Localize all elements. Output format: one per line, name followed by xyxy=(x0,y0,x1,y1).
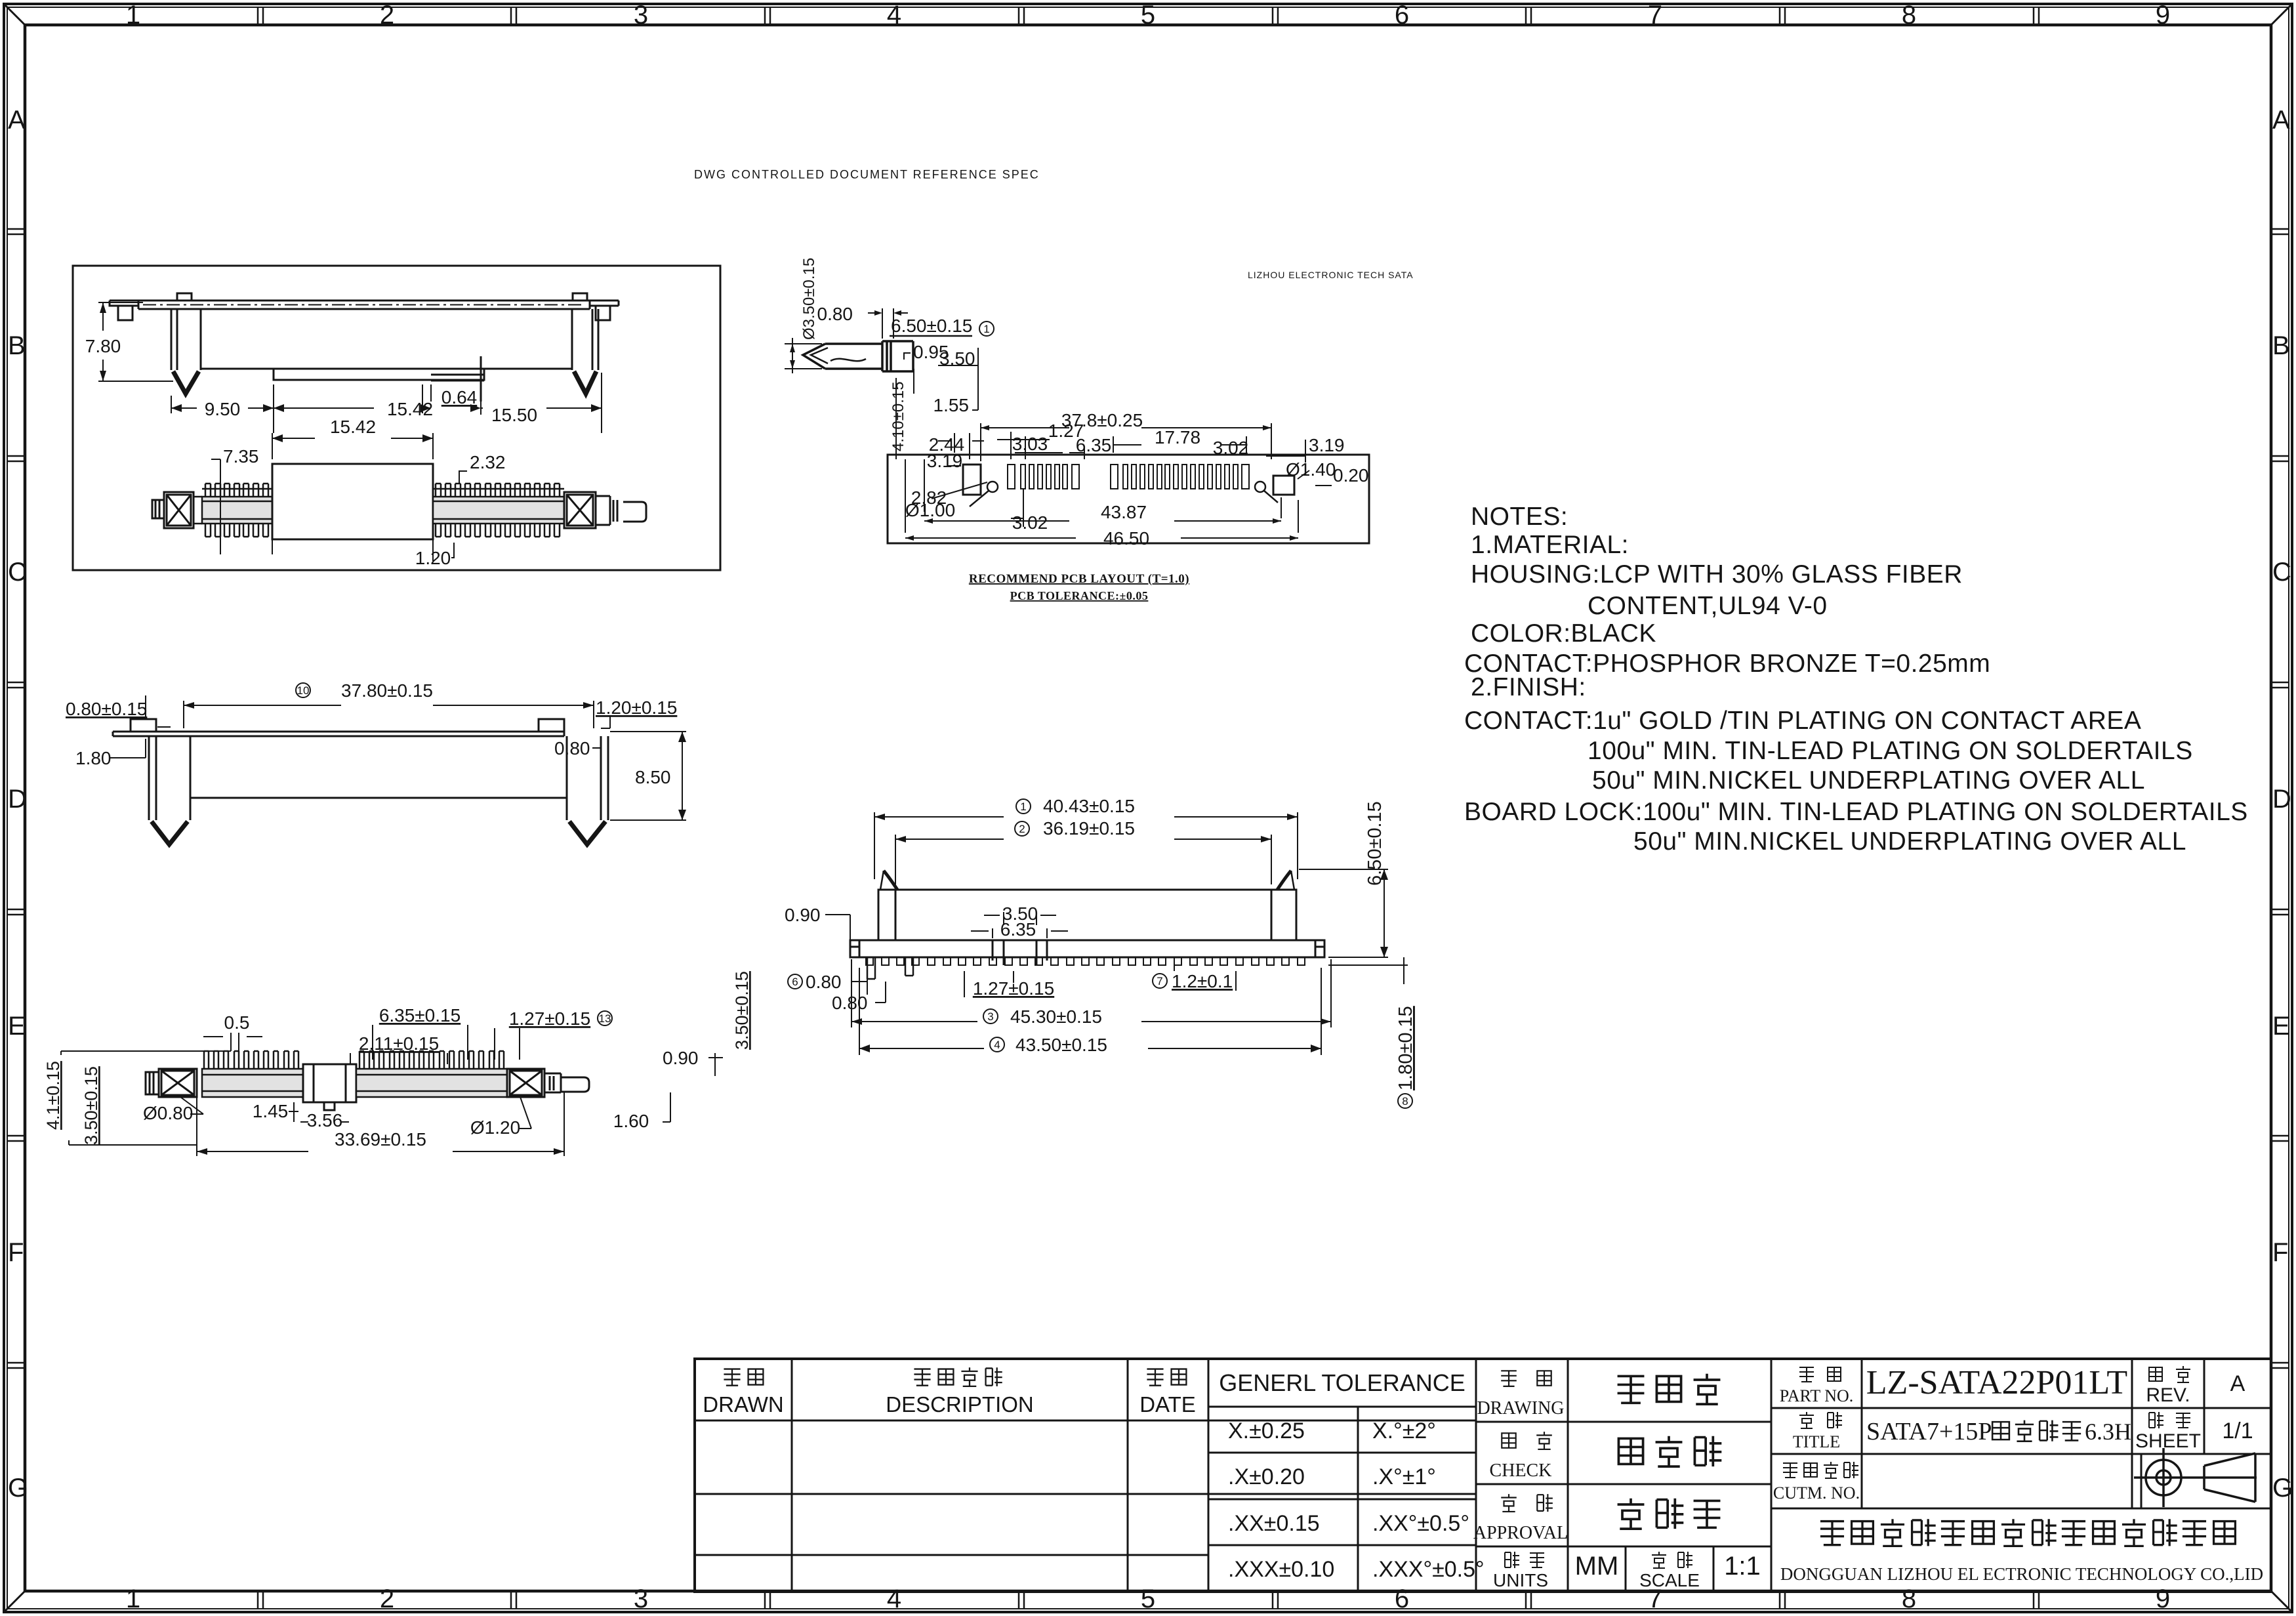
svg-text:43.87: 43.87 xyxy=(1101,502,1147,522)
svg-text:4: 4 xyxy=(887,1,901,30)
svg-text:1.45: 1.45 xyxy=(253,1101,289,1121)
svg-text:3.03: 3.03 xyxy=(1012,434,1048,454)
svg-text:CONTACT:1u" GOLD /TIN PLATI: CONTACT:1u" GOLD /TIN PLATING ON CONTACT… xyxy=(1464,707,2141,735)
svg-text:B: B xyxy=(8,331,26,360)
svg-text:3.02: 3.02 xyxy=(1012,512,1048,533)
svg-text:PART NO.: PART NO. xyxy=(1780,1386,1854,1405)
svg-text:.XX°±0.5°: .XX°±0.5° xyxy=(1372,1511,1469,1536)
svg-text:50u" MIN.NICKEL UNDERPLATING: 50u" MIN.NICKEL UNDERPLATING OVER ALL xyxy=(1633,827,2186,856)
svg-text:SHEET: SHEET xyxy=(2135,1430,2201,1452)
svg-text:F: F xyxy=(8,1238,24,1267)
svg-text:UNITS: UNITS xyxy=(1493,1570,1548,1590)
svg-text:G: G xyxy=(2272,1474,2293,1502)
svg-text:1.2±0.1: 1.2±0.1 xyxy=(1172,971,1233,991)
svg-text:.XXX±0.10: .XXX±0.10 xyxy=(1228,1557,1334,1582)
svg-text:1.55: 1.55 xyxy=(933,395,970,415)
svg-text:6.3H: 6.3H xyxy=(2085,1419,2131,1445)
svg-text:D: D xyxy=(8,785,27,814)
svg-text:.XX±0.15: .XX±0.15 xyxy=(1228,1511,1320,1536)
svg-text:C: C xyxy=(8,558,27,587)
svg-text:MM: MM xyxy=(1575,1552,1619,1581)
svg-text:9: 9 xyxy=(2156,1585,2170,1613)
svg-text:C: C xyxy=(2272,558,2291,587)
svg-text:7: 7 xyxy=(1157,975,1162,987)
svg-text:NOTES:: NOTES: xyxy=(1471,503,1568,531)
svg-text:1.20±0.15: 1.20±0.15 xyxy=(596,697,677,718)
svg-text:8: 8 xyxy=(1902,1,1916,30)
svg-text:33.69±0.15: 33.69±0.15 xyxy=(335,1129,426,1150)
svg-text:DATE: DATE xyxy=(1139,1392,1196,1417)
svg-text:B: B xyxy=(2272,331,2290,360)
svg-text:2.FINISH:: 2.FINISH: xyxy=(1471,673,1586,701)
svg-text:0.20: 0.20 xyxy=(1333,465,1369,486)
svg-text:APPROVAL: APPROVAL xyxy=(1473,1523,1568,1543)
svg-text:CHECK: CHECK xyxy=(1490,1461,1552,1481)
svg-text:8: 8 xyxy=(1402,1095,1408,1108)
svg-text:0.90: 0.90 xyxy=(663,1048,699,1068)
svg-text:13: 13 xyxy=(599,1012,611,1025)
svg-text:6.35: 6.35 xyxy=(1076,435,1112,455)
svg-text:4: 4 xyxy=(887,1585,901,1613)
svg-text:0.80: 0.80 xyxy=(554,738,590,758)
svg-text:A: A xyxy=(2272,106,2290,135)
svg-text:3.56: 3.56 xyxy=(307,1110,343,1130)
svg-text:A: A xyxy=(2230,1371,2245,1396)
svg-text:DRAWN: DRAWN xyxy=(703,1392,783,1417)
svg-text:10: 10 xyxy=(297,684,310,697)
svg-text:TITLE: TITLE xyxy=(1793,1432,1840,1451)
svg-text:17.78: 17.78 xyxy=(1155,427,1200,447)
svg-text:3.02: 3.02 xyxy=(1213,438,1249,458)
svg-text:X.±0.25: X.±0.25 xyxy=(1228,1419,1305,1443)
svg-text:0.5: 0.5 xyxy=(224,1012,250,1033)
svg-text:PCB TOLERANCE:±0.05: PCB TOLERANCE:±0.05 xyxy=(1010,589,1149,602)
svg-text:Ø1.20: Ø1.20 xyxy=(470,1117,520,1138)
svg-text:E: E xyxy=(2272,1012,2290,1041)
svg-text:3.50±0.15: 3.50±0.15 xyxy=(81,1066,101,1145)
svg-text:6: 6 xyxy=(1395,1585,1409,1613)
svg-text:9: 9 xyxy=(2156,1,2170,30)
svg-text:CONTENT,UL94 V-0: CONTENT,UL94 V-0 xyxy=(1588,592,1828,620)
svg-text:2: 2 xyxy=(1019,823,1025,835)
svg-text:GENERL TOLERANCE: GENERL TOLERANCE xyxy=(1219,1369,1465,1396)
svg-text:0.80: 0.80 xyxy=(806,972,842,992)
svg-text:1.80: 1.80 xyxy=(75,748,112,768)
svg-text:4.10±0.15: 4.10±0.15 xyxy=(890,381,907,451)
svg-text:Ø1.00: Ø1.00 xyxy=(905,500,955,520)
svg-text:BOARD LOCK:100u" MIN. TIN-L: BOARD LOCK:100u" MIN. TIN-LEAD PLATING O… xyxy=(1464,798,2248,826)
svg-text:5: 5 xyxy=(1141,1,1155,30)
svg-text:REV.: REV. xyxy=(2146,1384,2190,1406)
svg-text:100u" MIN. TIN-LEAD PLATING: 100u" MIN. TIN-LEAD PLATING ON SOLDERTAI… xyxy=(1588,737,2193,765)
svg-text:0.90: 0.90 xyxy=(785,905,821,925)
svg-text:LZ-SATA22P01LT: LZ-SATA22P01LT xyxy=(1866,1364,2127,1401)
svg-text:X.°±2°: X.°±2° xyxy=(1372,1419,1436,1443)
svg-text:DONGGUAN LIZHOU EL ECTRONIC TE: DONGGUAN LIZHOU EL ECTRONIC TECHNOLOGY C… xyxy=(1780,1564,2263,1584)
svg-text:3: 3 xyxy=(634,1585,648,1613)
svg-text:3.19: 3.19 xyxy=(927,451,963,471)
svg-text:1: 1 xyxy=(1020,800,1026,813)
svg-text:9.50: 9.50 xyxy=(205,399,241,419)
svg-text:LIZHOU ELECTRONIC TECH SATA: LIZHOU ELECTRONIC TECH SATA xyxy=(1248,270,1414,280)
svg-text:1.27±0.15: 1.27±0.15 xyxy=(509,1008,590,1029)
svg-text:0.80: 0.80 xyxy=(832,993,868,1013)
svg-text:DRAWING: DRAWING xyxy=(1477,1398,1564,1419)
svg-text:2: 2 xyxy=(380,1585,394,1613)
svg-text:RECOMMEND PCB LAYOUT (T=1.0): RECOMMEND PCB LAYOUT (T=1.0) xyxy=(969,572,1189,586)
svg-text:6.35±0.15: 6.35±0.15 xyxy=(379,1005,461,1026)
svg-text:6.35: 6.35 xyxy=(1000,919,1036,940)
svg-text:37.80±0.15: 37.80±0.15 xyxy=(341,680,433,701)
svg-text:Ø0.80: Ø0.80 xyxy=(143,1103,193,1123)
svg-text:7.80: 7.80 xyxy=(85,336,121,356)
svg-text:6: 6 xyxy=(792,976,798,988)
svg-text:1: 1 xyxy=(126,1585,140,1613)
svg-text:E: E xyxy=(8,1012,26,1041)
svg-text:HOUSING:LCP WITH 30% GLASS: HOUSING:LCP WITH 30% GLASS FIBER xyxy=(1471,560,1963,589)
svg-text:5: 5 xyxy=(1141,1585,1155,1613)
svg-text:1.80±0.15: 1.80±0.15 xyxy=(1395,1006,1416,1090)
svg-text:1: 1 xyxy=(126,1,140,30)
svg-text:45.30±0.15: 45.30±0.15 xyxy=(1010,1006,1102,1027)
svg-text:1: 1 xyxy=(983,323,989,335)
svg-text:DESCRIPTION: DESCRIPTION xyxy=(886,1392,1034,1417)
svg-text:0.80±0.15: 0.80±0.15 xyxy=(66,699,147,719)
svg-text:SCALE: SCALE xyxy=(1639,1570,1700,1590)
svg-text:1.60: 1.60 xyxy=(613,1111,649,1131)
svg-text:2.11±0.15: 2.11±0.15 xyxy=(359,1033,439,1054)
svg-text:D: D xyxy=(2272,785,2291,814)
svg-text:43.50±0.15: 43.50±0.15 xyxy=(1015,1035,1107,1055)
svg-text:6.50±0.15: 6.50±0.15 xyxy=(891,316,972,336)
svg-text:0.80: 0.80 xyxy=(817,304,853,324)
svg-text:CUTM. NO.: CUTM. NO. xyxy=(1773,1483,1860,1502)
svg-text:7.35: 7.35 xyxy=(223,446,259,466)
svg-text:3.19: 3.19 xyxy=(1309,435,1345,455)
svg-text:DWG CONTROLLED DOCUMENT REFERE: DWG CONTROLLED DOCUMENT REFERENCE SPEC xyxy=(694,168,1040,181)
svg-text:2.32: 2.32 xyxy=(470,452,506,472)
svg-text:F: F xyxy=(2272,1238,2288,1267)
svg-text:7: 7 xyxy=(1648,1,1662,30)
svg-text:2: 2 xyxy=(380,1,394,30)
svg-text:COLOR:BLACK: COLOR:BLACK xyxy=(1471,619,1656,648)
svg-text:.X±0.20: .X±0.20 xyxy=(1228,1464,1305,1489)
svg-text:36.19±0.15: 36.19±0.15 xyxy=(1043,818,1135,839)
svg-text:6: 6 xyxy=(1395,1,1409,30)
svg-text:0.64: 0.64 xyxy=(441,387,478,407)
svg-text:3: 3 xyxy=(987,1010,993,1023)
svg-text:8.50: 8.50 xyxy=(635,767,671,787)
svg-text:1:1: 1:1 xyxy=(1724,1552,1761,1581)
svg-text:50u" MIN.NICKEL UNDERPLATING: 50u" MIN.NICKEL UNDERPLATING OVER ALL xyxy=(1592,766,2145,795)
svg-text:4: 4 xyxy=(994,1039,1000,1051)
svg-text:4.1±0.15: 4.1±0.15 xyxy=(43,1061,63,1130)
svg-text:1.20: 1.20 xyxy=(415,548,451,568)
svg-text:3: 3 xyxy=(634,1,648,30)
svg-text:40.43±0.15: 40.43±0.15 xyxy=(1043,796,1135,816)
svg-text:.XXX°±0.5°: .XXX°±0.5° xyxy=(1372,1557,1485,1582)
svg-text:15.50: 15.50 xyxy=(491,405,537,425)
svg-text:A: A xyxy=(8,106,26,135)
svg-text:3.50: 3.50 xyxy=(939,348,975,369)
svg-text:Ø1.40: Ø1.40 xyxy=(1286,459,1336,480)
svg-text:Ø3.50±0.15: Ø3.50±0.15 xyxy=(800,258,818,340)
svg-text:1/1: 1/1 xyxy=(2222,1419,2253,1443)
svg-text:1.MATERIAL:: 1.MATERIAL: xyxy=(1471,531,1629,559)
svg-text:SATA7+15P: SATA7+15P xyxy=(1866,1418,1992,1445)
svg-text:8: 8 xyxy=(1902,1585,1916,1613)
svg-text:3.50±0.15: 3.50±0.15 xyxy=(732,971,752,1050)
svg-text:15.42: 15.42 xyxy=(387,399,433,419)
svg-text:6.50±0.15: 6.50±0.15 xyxy=(1364,801,1385,886)
svg-text:G: G xyxy=(8,1474,28,1502)
svg-text:46.50: 46.50 xyxy=(1103,528,1149,549)
svg-text:15.42: 15.42 xyxy=(330,417,376,437)
svg-text:.X°±1°: .X°±1° xyxy=(1372,1464,1436,1489)
